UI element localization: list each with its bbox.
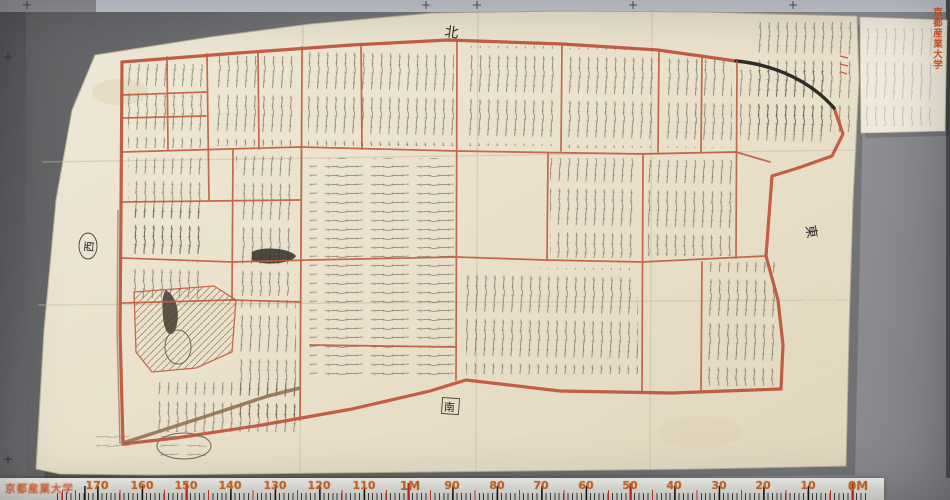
scale-ruler: 京都産業大学 170 160 150 140 130 120 110 1M 90… (0, 478, 884, 500)
side-note-pencil-text (866, 28, 938, 126)
ruler-label: 30 (711, 479, 726, 492)
ruler-label-1m: 1M (400, 479, 420, 493)
ruler-label: 10 (800, 479, 815, 492)
map-scan-graphic: 北 東 西 南 (0, 0, 950, 500)
ruler-label: 150 (175, 479, 198, 492)
ruler-label: 170 (86, 479, 109, 492)
north-label: 北 (443, 24, 459, 42)
ruler-label: 80 (489, 479, 504, 492)
ruler-label: 50 (622, 479, 637, 492)
ruler-label: 130 (264, 479, 287, 492)
west-label: 西 (82, 241, 96, 253)
ruler-label: 160 (131, 479, 154, 492)
ruler-label: 70 (533, 479, 548, 492)
ruler-label: 120 (308, 479, 331, 492)
ruler-label: 40 (666, 479, 681, 492)
ruler-label: 110 (353, 479, 376, 492)
south-label: 南 (443, 401, 455, 415)
ruler-label: 60 (578, 479, 593, 492)
ruler-label: 140 (219, 479, 242, 492)
ruler-label-0m: 0M (848, 479, 868, 493)
scan-viewport: 北 東 西 南 京都産業大学 京都産業大学 170 160 150 140 13… (0, 0, 950, 500)
institution-stamp-vertical: 京都産業大学 (929, 7, 943, 127)
ruler-label: 90 (444, 479, 459, 492)
east-label: 東 (802, 224, 820, 240)
ruler-label: 20 (755, 479, 770, 492)
